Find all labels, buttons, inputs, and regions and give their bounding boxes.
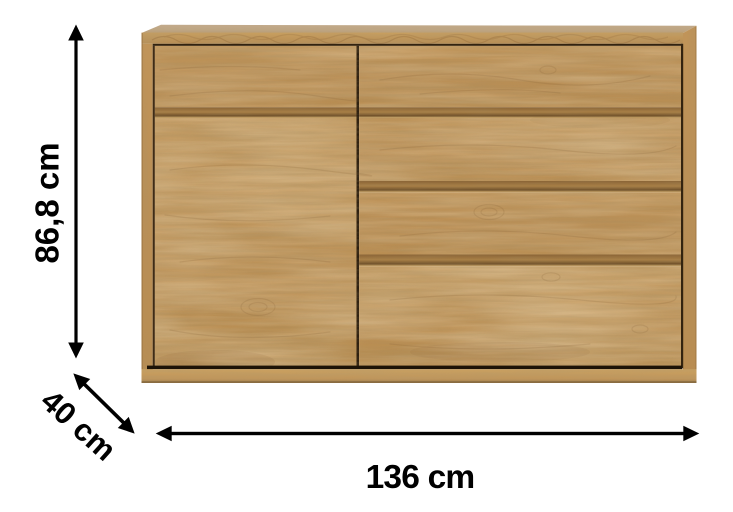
svg-text:136 cm: 136 cm	[366, 459, 475, 496]
svg-text:86,8 cm: 86,8 cm	[29, 142, 66, 263]
